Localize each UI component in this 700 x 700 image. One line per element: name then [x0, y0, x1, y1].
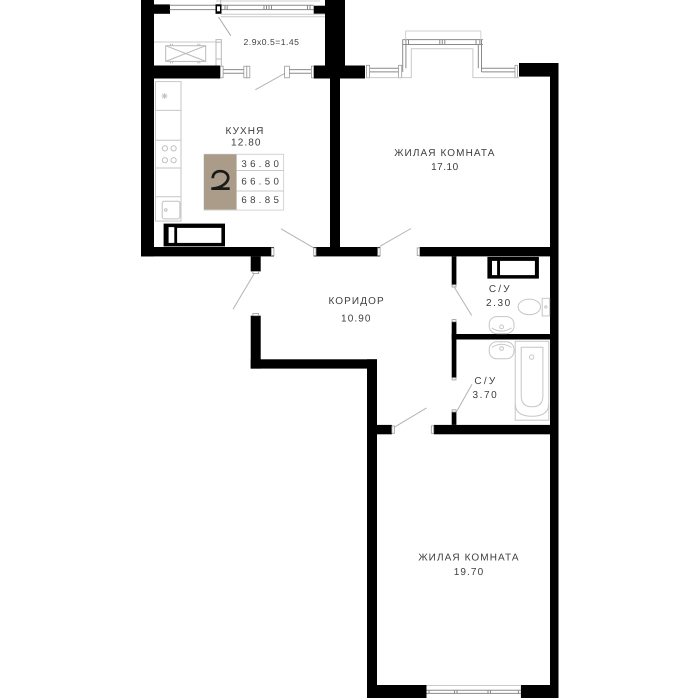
svg-text:2.30: 2.30 [486, 298, 512, 309]
svg-text:ЖИЛАЯ КОМНАТА: ЖИЛАЯ КОМНАТА [418, 553, 519, 564]
svg-text:ЖИЛАЯ КОМНАТА: ЖИЛАЯ КОМНАТА [394, 148, 495, 159]
svg-text:КОРИДОР: КОРИДОР [328, 296, 384, 307]
svg-text:12.80: 12.80 [231, 138, 262, 149]
svg-text:2.9x0.5=1.45: 2.9x0.5=1.45 [244, 37, 300, 47]
svg-text:3.70: 3.70 [472, 390, 498, 401]
svg-text:10.90: 10.90 [341, 314, 372, 325]
svg-text:КУХНЯ: КУХНЯ [226, 126, 265, 137]
svg-text:С/У: С/У [474, 376, 497, 387]
svg-text:17.10: 17.10 [431, 162, 459, 173]
svg-text:66.50: 66.50 [241, 177, 282, 188]
svg-text:68.85: 68.85 [241, 195, 282, 206]
svg-text:36.80: 36.80 [241, 159, 282, 170]
svg-text:19.70: 19.70 [454, 567, 485, 578]
svg-text:С/У: С/У [489, 284, 512, 295]
